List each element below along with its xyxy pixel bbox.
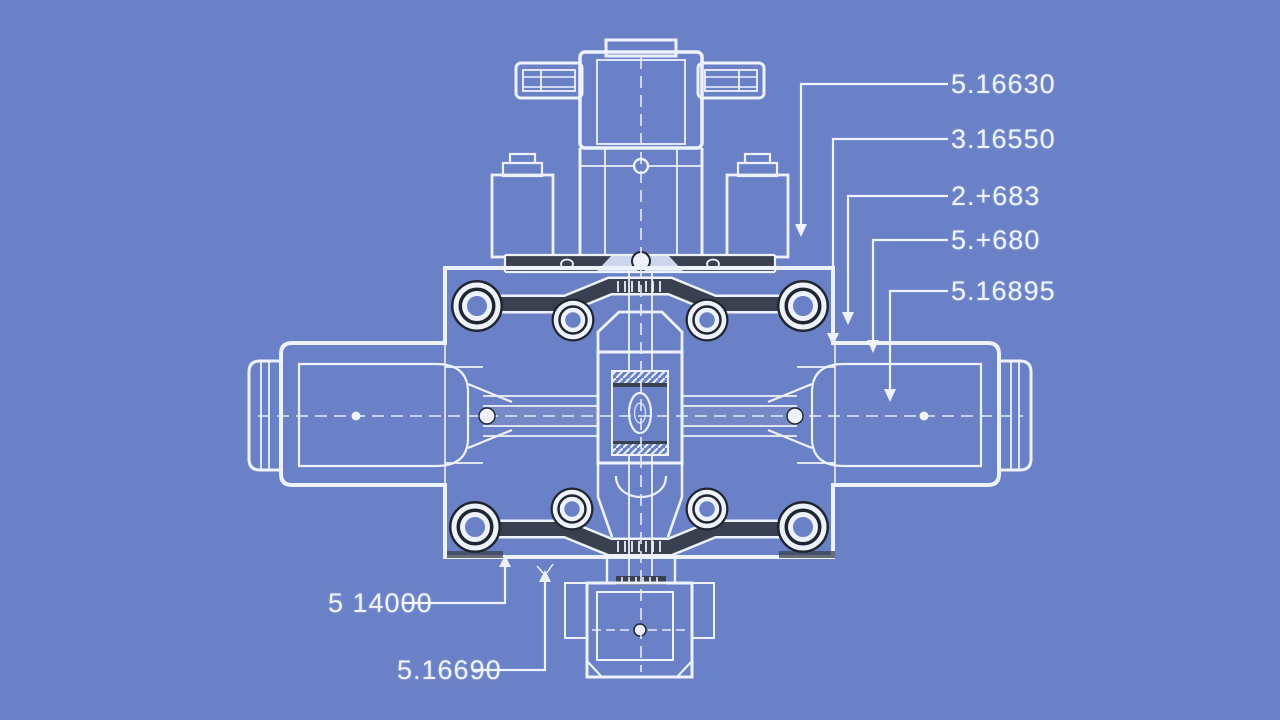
valve-blueprint-drawing [0, 0, 1280, 720]
upper-yoke-ticks [618, 281, 660, 292]
dimension-label-right-2: 3.16550 [951, 124, 1056, 154]
dimension-label-right-4: 5.+680 [951, 225, 1040, 255]
dimension-label-bottom-2: 5.16690 [397, 655, 502, 685]
background [0, 0, 1280, 720]
dimension-label-right-5: 5.16895 [951, 276, 1056, 306]
bolt-hole [451, 280, 503, 332]
bolt-hole [551, 488, 594, 531]
blueprint-canvas: 5.16630 3.16550 2.+683 5.+680 5.16895 5 … [0, 0, 1280, 720]
dimension-label-bottom-1: 5 14000 [328, 588, 433, 618]
bolt-hole [449, 501, 501, 553]
bolt-hole [777, 501, 829, 553]
bolt-hole [552, 299, 595, 342]
lower-yoke-ticks [618, 541, 660, 552]
bolt-hole [686, 488, 729, 531]
bolt-hole [686, 299, 729, 342]
bottom-port-center [634, 624, 646, 636]
bolt-hole [777, 280, 829, 332]
dimension-label-right-3: 2.+683 [951, 181, 1040, 211]
dimension-label-right-1: 5.16630 [951, 69, 1056, 99]
